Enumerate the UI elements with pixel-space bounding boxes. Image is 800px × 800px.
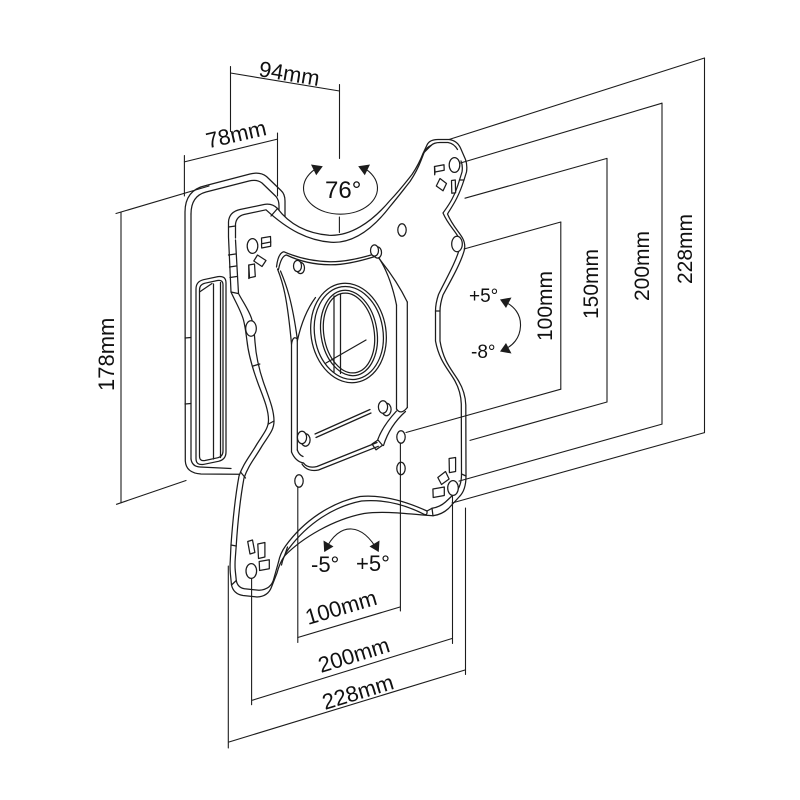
svg-text:-8°: -8° xyxy=(471,342,496,363)
svg-text:100mm: 100mm xyxy=(534,271,557,341)
svg-text:150mm: 150mm xyxy=(580,249,603,319)
svg-text:76°: 76° xyxy=(325,177,361,204)
svg-text:+5°: +5° xyxy=(356,551,390,576)
svg-text:200mm: 200mm xyxy=(631,231,654,301)
svg-text:-5°: -5° xyxy=(311,552,339,577)
svg-text:+5°: +5° xyxy=(469,286,498,307)
svg-text:228mm: 228mm xyxy=(674,214,697,284)
svg-text:178mm: 178mm xyxy=(94,318,119,391)
